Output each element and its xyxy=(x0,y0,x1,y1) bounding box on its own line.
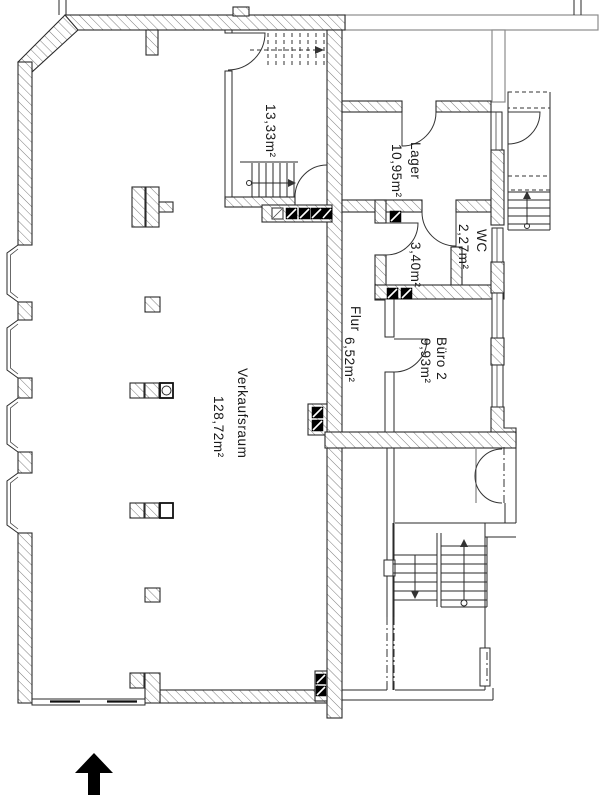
window-right-4 xyxy=(492,365,503,407)
room-area: 13,33m² xyxy=(263,104,278,158)
room-area: 2,27m² xyxy=(456,224,471,270)
room-name: Büro 2 xyxy=(434,337,449,380)
room-area: 10,95m² xyxy=(389,144,404,198)
entry-stairs xyxy=(508,92,550,230)
storefront-window-bottom xyxy=(32,699,145,705)
double-door xyxy=(475,447,504,503)
lower-section xyxy=(342,445,516,700)
door-arc-stairroom-top xyxy=(228,33,265,70)
bay-window-2 xyxy=(7,320,18,378)
stair-arrow-head xyxy=(315,46,324,54)
bay-window-1 xyxy=(7,245,18,302)
room-area: 3,40m² xyxy=(408,242,423,288)
room-label-verkaufsraum: Verkaufsraum 128,72m² xyxy=(211,368,250,459)
room-area: 128,72m² xyxy=(211,396,226,458)
room-label-vorraum: 3,40m² xyxy=(408,242,423,288)
room-label-lager: Lager 10,95m² xyxy=(389,142,423,198)
room-label-treppenraum: 13,33m² xyxy=(263,104,278,158)
bay-window-3 xyxy=(7,398,18,452)
door-arc-stairroom-bottom xyxy=(295,165,327,197)
window-right-2 xyxy=(492,228,503,262)
room-name: Verkaufsraum xyxy=(235,368,250,459)
bay-window-4 xyxy=(7,473,18,533)
window-right-1 xyxy=(491,112,502,150)
door-arc-entry xyxy=(508,112,540,144)
window-right-3 xyxy=(492,293,503,338)
window-lower-right xyxy=(480,648,490,686)
salesroom-columns xyxy=(130,187,173,602)
room-labels: Verkaufsraum 128,72m² 13,33m² Lager 10,9… xyxy=(211,104,489,459)
room-label-wc: WC 2,27m² xyxy=(456,224,489,270)
door-arc-lager xyxy=(402,112,436,146)
north-arrow xyxy=(75,753,113,795)
room-name: Flur xyxy=(348,306,363,332)
room-label-flur: Flur 6,52m² xyxy=(342,306,363,383)
bay-windows xyxy=(7,245,18,533)
room-area: 9,93m² xyxy=(418,338,433,384)
room-label-buero2: Büro 2 9,93m² xyxy=(418,337,449,384)
room-name: WC xyxy=(474,229,489,253)
door-arc-vorraum-from-lager xyxy=(422,212,456,246)
main-staircase xyxy=(393,523,516,690)
column-strip-under-stairroom xyxy=(272,208,332,219)
stair-down-arrow-head xyxy=(411,591,419,599)
lower-stairs xyxy=(240,162,298,197)
floor-plan-canvas: Verkaufsraum 128,72m² 13,33m² Lager 10,9… xyxy=(0,0,608,800)
room-name: Lager xyxy=(408,142,423,180)
stair-up-arrow-head xyxy=(460,539,468,547)
stair-arrow-head xyxy=(288,179,296,187)
room-area: 6,52m² xyxy=(342,337,357,383)
floorplan-svg: Verkaufsraum 128,72m² 13,33m² Lager 10,9… xyxy=(0,0,608,800)
